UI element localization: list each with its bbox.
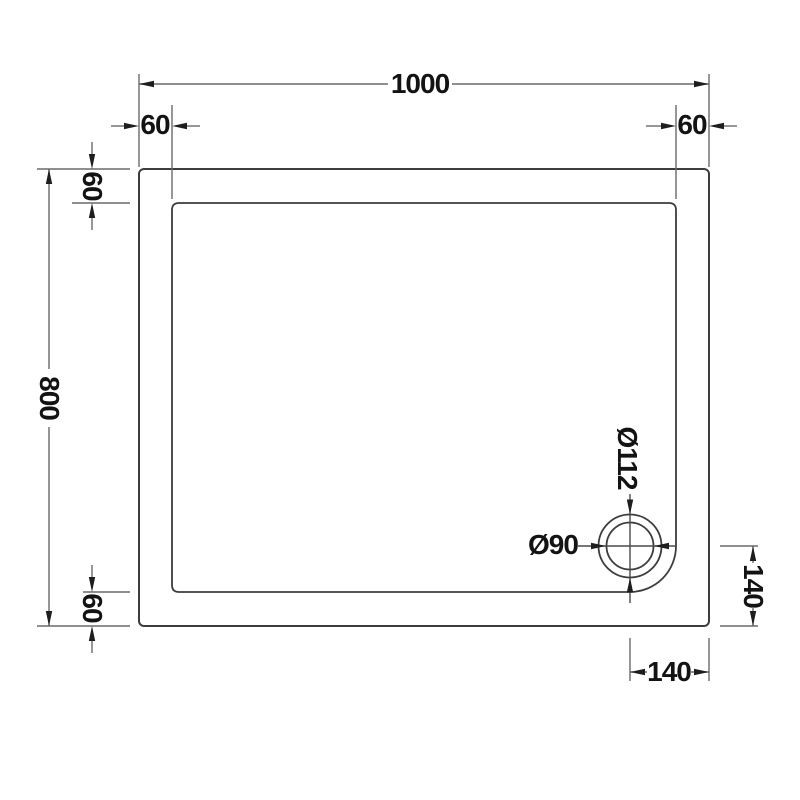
dim-drain-offset-bottom-label: 140 [647, 658, 691, 686]
extension-lines [37, 74, 758, 681]
tray-outline [139, 169, 709, 626]
dim-overall-depth-label: 800 [35, 376, 63, 420]
dim-drain-flange-label: Ø112 [613, 427, 641, 490]
tray-outer-edge [139, 169, 709, 626]
technical-drawing: 1000 60 60 800 60 60 Ø112 Ø90 140 140 [0, 0, 800, 800]
dim-overall-width-label: 1000 [391, 70, 449, 98]
dim-edge-left-bottom-label: 60 [78, 593, 106, 622]
dim-edge-top-right-label: 60 [677, 111, 706, 139]
dim-edge-left-top-label: 60 [78, 171, 106, 200]
dim-edge-top-left-label: 60 [140, 111, 169, 139]
dim-drain-waste-label: Ø90 [528, 531, 578, 559]
dim-drain-offset-right-label: 140 [739, 564, 767, 608]
